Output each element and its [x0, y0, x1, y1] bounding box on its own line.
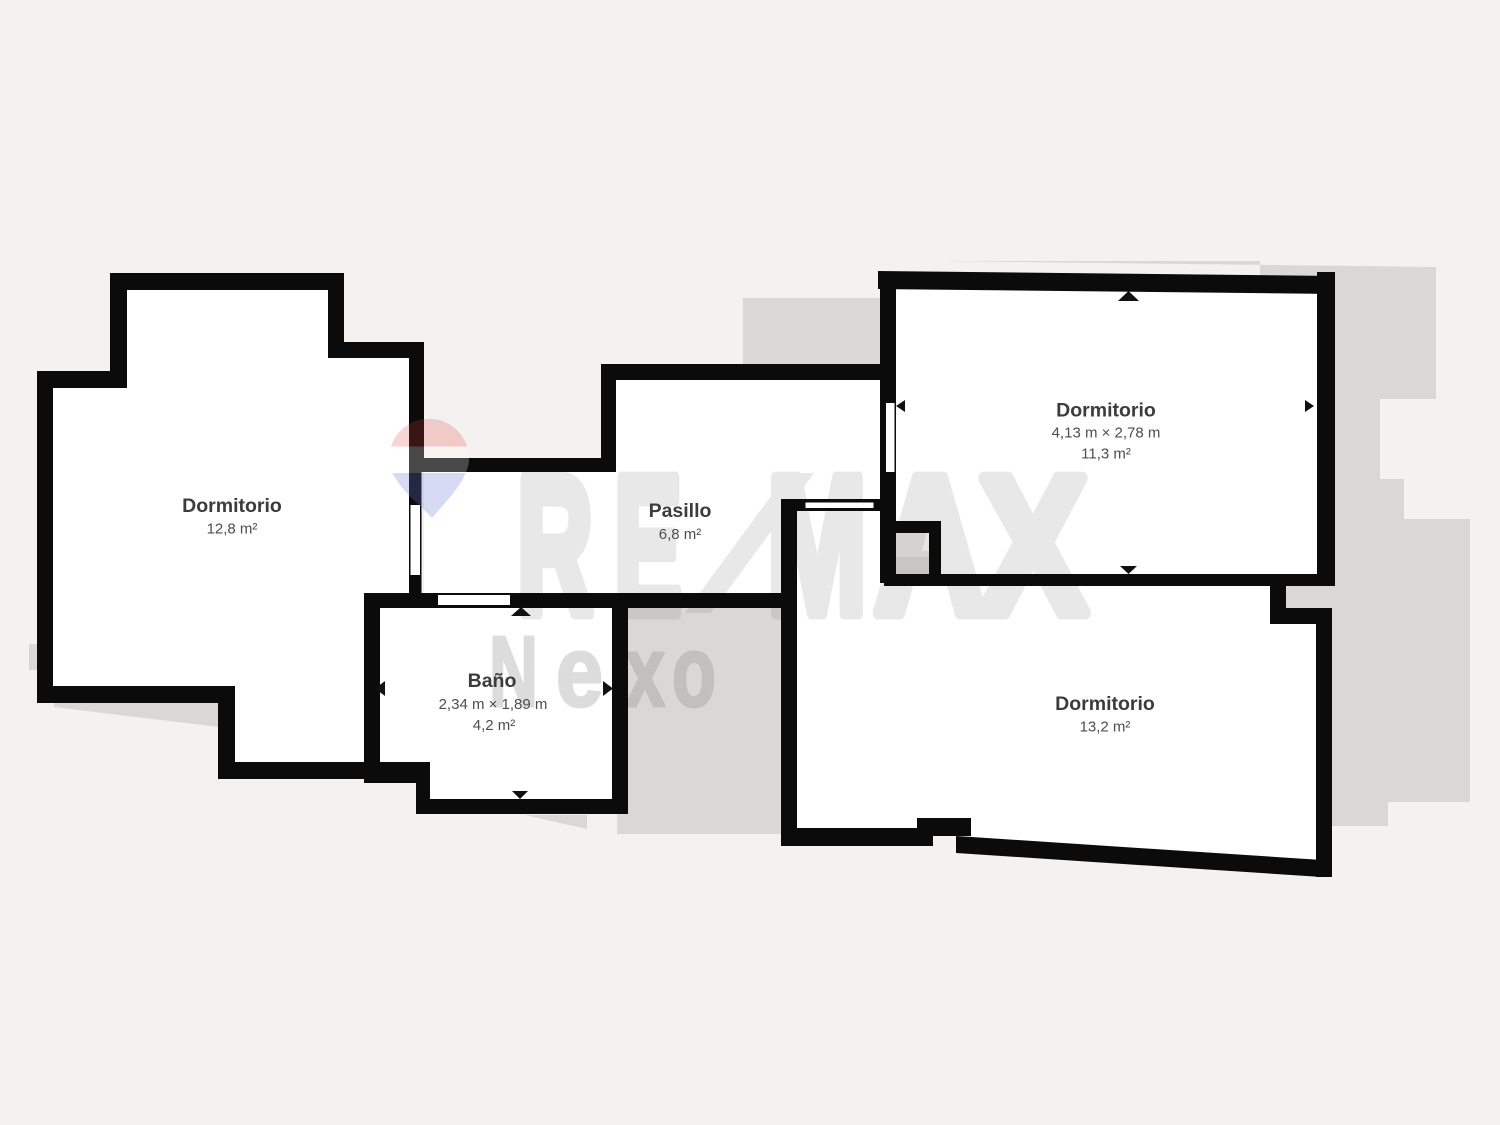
svg-text:e: e: [556, 616, 603, 728]
svg-text:2,34 m × 1,89 m: 2,34 m × 1,89 m: [439, 696, 548, 713]
svg-text:o: o: [672, 616, 716, 728]
svg-text:4,2 m²: 4,2 m²: [473, 717, 516, 734]
svg-text:12,8 m²: 12,8 m²: [207, 521, 258, 538]
svg-text:4,13 m × 2,78 m: 4,13 m × 2,78 m: [1052, 425, 1161, 442]
svg-text:Baño: Baño: [468, 670, 517, 692]
svg-text:Dormitorio: Dormitorio: [1055, 693, 1155, 715]
svg-text:Pasillo: Pasillo: [649, 500, 712, 522]
svg-text:6,8 m²: 6,8 m²: [659, 526, 702, 543]
svg-text:Dormitorio: Dormitorio: [1056, 400, 1156, 422]
svg-text:13,2 m²: 13,2 m²: [1080, 719, 1131, 736]
svg-text:X: X: [979, 436, 1087, 655]
svg-text:Dormitorio: Dormitorio: [182, 495, 282, 517]
svg-text:x: x: [625, 616, 665, 728]
svg-text:11,3 m²: 11,3 m²: [1081, 446, 1131, 463]
